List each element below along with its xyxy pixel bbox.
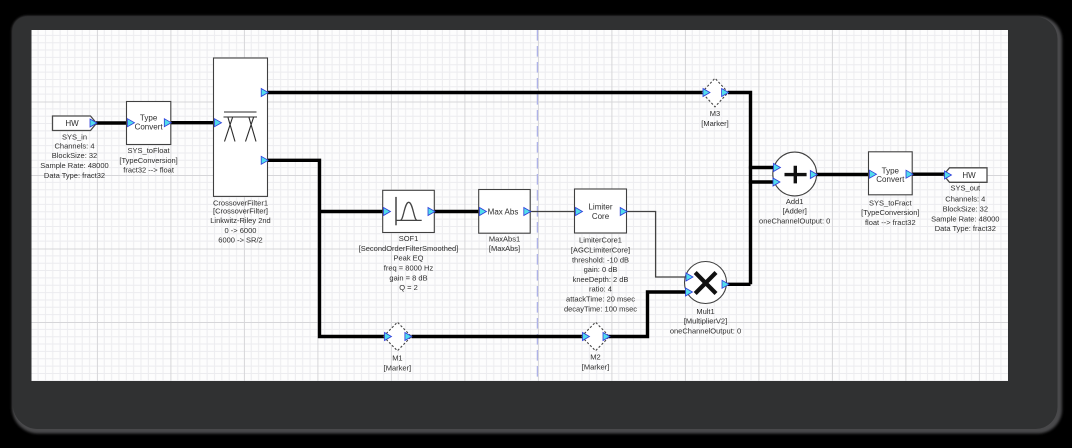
svg-text:MaxAbs1: MaxAbs1 <box>489 235 520 244</box>
svg-text:Sample Rate: 48000: Sample Rate: 48000 <box>40 161 108 170</box>
svg-text:[AGCLimiterCore]: [AGCLimiterCore] <box>571 246 630 255</box>
svg-text:[MultiplierV2]: [MultiplierV2] <box>684 317 727 326</box>
svg-text:[Marker]: [Marker] <box>384 363 412 372</box>
svg-text:BlockSize: 32: BlockSize: 32 <box>943 205 988 214</box>
svg-text:ratio: 4: ratio: 4 <box>589 285 612 294</box>
svg-text:0 -> 6000: 0 -> 6000 <box>225 226 257 235</box>
svg-text:[Marker]: [Marker] <box>582 362 610 371</box>
svg-text:Linkwitz-Riley 2nd: Linkwitz-Riley 2nd <box>210 216 270 225</box>
svg-text:[Adder]: [Adder] <box>783 207 807 216</box>
svg-text:threshold: -10 dB: threshold: -10 dB <box>572 255 629 264</box>
svg-text:Core: Core <box>592 212 610 221</box>
svg-text:Convert: Convert <box>876 175 905 184</box>
svg-text:M2: M2 <box>590 353 600 362</box>
svg-text:Q = 2: Q = 2 <box>399 283 418 292</box>
svg-text:[TypeConversion]: [TypeConversion] <box>119 156 177 165</box>
svg-text:SYS_in: SYS_in <box>62 132 87 141</box>
svg-text:[SecondOrderFilterSmoothed]: [SecondOrderFilterSmoothed] <box>359 244 459 253</box>
svg-text:Channels: 4: Channels: 4 <box>54 142 94 151</box>
svg-text:SYS_out: SYS_out <box>950 184 981 193</box>
svg-text:HW: HW <box>65 119 79 128</box>
svg-text:M1: M1 <box>392 354 402 363</box>
svg-text:[MaxAbs]: [MaxAbs] <box>489 244 520 253</box>
svg-text:fract32 --> float: fract32 --> float <box>123 165 175 174</box>
svg-text:oneChannelOutput: 0: oneChannelOutput: 0 <box>759 216 830 225</box>
svg-text:freq = 8000 Hz: freq = 8000 Hz <box>384 264 434 273</box>
svg-text:HW: HW <box>962 171 976 180</box>
svg-text:SOF1: SOF1 <box>399 234 419 243</box>
svg-text:decayTime: 100 msec: decayTime: 100 msec <box>564 304 637 313</box>
svg-text:oneChannelOutput: 0: oneChannelOutput: 0 <box>670 327 741 336</box>
svg-text:Mult1: Mult1 <box>696 307 714 316</box>
svg-text:Max Abs: Max Abs <box>488 207 519 216</box>
svg-text:Data Type: fract32: Data Type: fract32 <box>935 224 996 233</box>
svg-text:[Marker]: [Marker] <box>701 119 729 128</box>
svg-text:SYS_toFloat: SYS_toFloat <box>128 146 171 155</box>
svg-text:Sample Rate: 48000: Sample Rate: 48000 <box>931 214 999 223</box>
svg-text:attackTime: 20 msec: attackTime: 20 msec <box>566 295 635 304</box>
svg-text:Limiter: Limiter <box>588 203 612 212</box>
svg-text:Add1: Add1 <box>786 197 804 206</box>
svg-text:SYS_toFract: SYS_toFract <box>869 198 912 207</box>
svg-text:6000 -> SR/2: 6000 -> SR/2 <box>218 236 262 245</box>
svg-text:Data Type: fract32: Data Type: fract32 <box>44 171 105 180</box>
svg-text:gain: 0 dB: gain: 0 dB <box>584 265 618 274</box>
svg-text:kneeDepth: 2 dB: kneeDepth: 2 dB <box>573 275 629 284</box>
svg-text:[CrossoverFilter]: [CrossoverFilter] <box>213 207 268 216</box>
svg-text:Channels: 4: Channels: 4 <box>945 194 985 203</box>
svg-text:BlockSize: 32: BlockSize: 32 <box>52 151 97 160</box>
svg-text:float --> fract32: float --> fract32 <box>865 218 916 227</box>
svg-text:Type: Type <box>140 114 158 123</box>
svg-text:Convert: Convert <box>135 123 164 132</box>
svg-text:[TypeConversion]: [TypeConversion] <box>861 208 919 217</box>
svg-text:Peak EQ: Peak EQ <box>393 254 423 263</box>
svg-text:gain = 8 dB: gain = 8 dB <box>389 273 427 282</box>
svg-text:M3: M3 <box>710 109 720 118</box>
svg-text:LimiterCore1: LimiterCore1 <box>579 236 622 245</box>
